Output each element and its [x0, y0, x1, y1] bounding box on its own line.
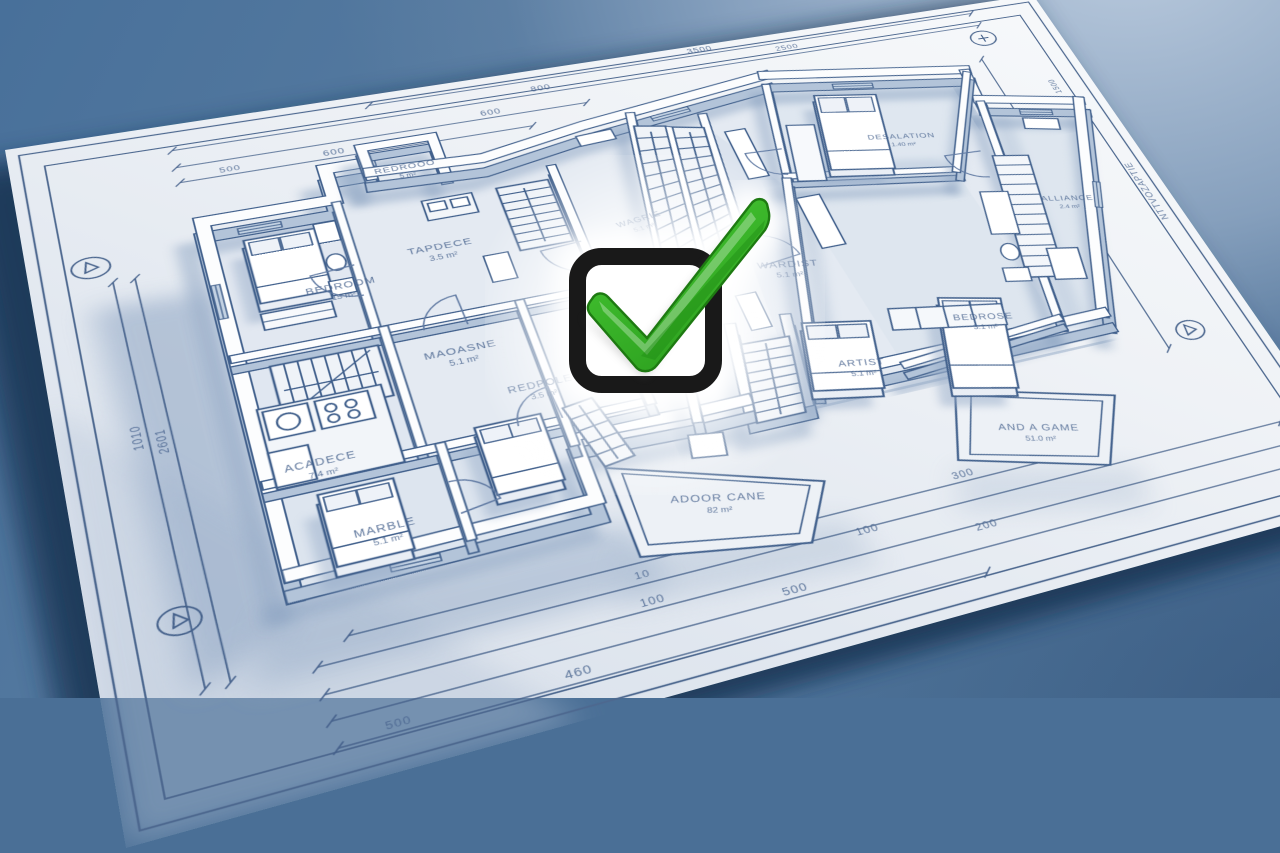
svg-text:500: 500 [780, 581, 810, 599]
svg-text:3.1 m²: 3.1 m² [973, 323, 1000, 331]
svg-text:3500: 3500 [686, 45, 714, 56]
svg-text:ALLIANCE: ALLIANCE [1040, 194, 1095, 203]
svg-text:200: 200 [973, 518, 1000, 534]
svg-text:1.40 m²: 1.40 m² [891, 141, 918, 148]
svg-text:82 m²: 82 m² [707, 505, 734, 515]
svg-text:5.1 m²: 5.1 m² [850, 369, 878, 378]
svg-text:51.0 m²: 51.0 m² [1025, 434, 1058, 442]
svg-text:1500: 1500 [1046, 78, 1064, 94]
svg-text:100: 100 [854, 522, 881, 538]
svg-text:AND A GAME: AND A GAME [997, 423, 1080, 433]
svg-text:2500: 2500 [774, 43, 800, 53]
svg-text:2.4 m²: 2.4 m² [1059, 203, 1082, 210]
